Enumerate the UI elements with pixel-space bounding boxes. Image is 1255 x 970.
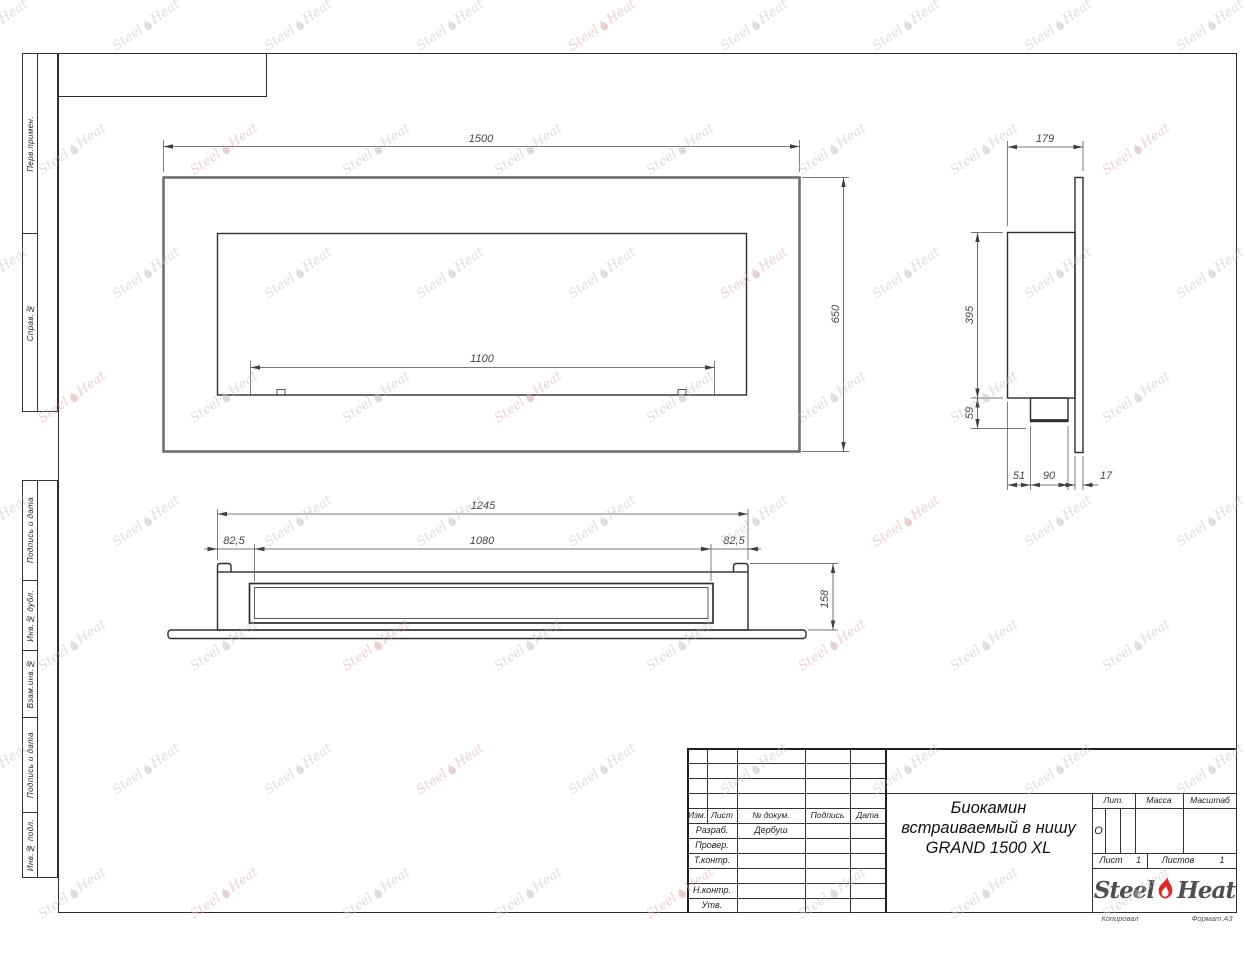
logo-text-right: Heat [1177, 877, 1235, 904]
front-panel-outline [164, 178, 800, 452]
title-line-1: Биокамин [951, 798, 1027, 818]
row-razrab: Разраб. [687, 823, 737, 838]
title-line-3: GRAND 1500 XL [926, 838, 1052, 858]
side-burner-tray [1031, 398, 1069, 422]
sheets-label: Листов [1147, 853, 1209, 868]
bottom-front-plate [168, 630, 806, 639]
dim-side-seg2: 90 [1043, 470, 1056, 482]
row-nkontr: Н.контр. [687, 883, 737, 898]
bottom-view: 1245 82,5 1080 82,5 158 [168, 500, 838, 639]
dim-front-width: 1500 [469, 133, 494, 145]
dim-bottom-left: 82,5 [223, 535, 245, 547]
copied-note: Копировал [1080, 914, 1160, 923]
lit-value: О [1092, 808, 1105, 853]
col-docnum: № докум. [737, 808, 805, 823]
dim-bottom-depth: 158 [819, 589, 831, 608]
dim-side-bottom: 59 [964, 407, 976, 419]
format-note: Формат А3 [1177, 914, 1247, 923]
sheet-label: Лист [1092, 853, 1130, 868]
mount-tab-right [734, 564, 749, 573]
dim-bottom-width: 1245 [471, 500, 496, 512]
opening-inner [255, 588, 709, 619]
title-line-2: встраиваемый в нишу [901, 818, 1076, 838]
row-utv: Утв. [687, 898, 737, 913]
side-front-plate [1075, 178, 1083, 453]
dim-front-height: 650 [830, 304, 842, 323]
mount-tab-left [218, 564, 232, 573]
burner-clip-right [678, 390, 686, 396]
opening-outer [250, 584, 714, 624]
lit-label: Лит. [1092, 793, 1135, 808]
mass-label: Масса [1135, 793, 1183, 808]
steelheat-logo: Steel Heat [1092, 868, 1237, 913]
sheets-value: 1 [1209, 853, 1235, 868]
col-data: Дата [850, 808, 885, 823]
razrab-name: Дербуш [737, 823, 805, 838]
row-tkontr: Т.контр. [687, 853, 737, 868]
niche-opening-outline [218, 234, 747, 396]
document-title: Биокамин встраиваемый в нишу GRAND 1500 … [885, 793, 1092, 913]
scale-label: Масштаб [1183, 793, 1237, 808]
dim-bottom-right: 82,5 [723, 535, 745, 547]
col-podpis: Подпись [805, 808, 850, 823]
bottom-dimensions: 1245 82,5 1080 82,5 158 [204, 500, 838, 630]
dim-front-opening: 1100 [470, 353, 495, 365]
front-view: 1500 650 1100 [164, 133, 850, 452]
side-body [1008, 233, 1076, 399]
dim-side-depth: 179 [1036, 133, 1054, 145]
side-view: 179 395 59 51 90 17 [964, 133, 1113, 490]
flame-icon [1155, 875, 1176, 906]
drawing-sheet: Перв.примен. Справ.№ Подпись и дата Инв.… [0, 0, 1255, 970]
sheet-value: 1 [1130, 853, 1147, 868]
col-list: Лист [707, 808, 737, 823]
dim-side-seg1: 51 [1013, 470, 1025, 482]
col-izm: Изм. [687, 808, 707, 823]
burner-clip-left [277, 390, 285, 396]
dim-side-seg3: 17 [1100, 470, 1113, 482]
dim-bottom-opening: 1080 [470, 535, 495, 547]
bottom-body [218, 572, 749, 630]
row-prover: Провер. [687, 838, 737, 853]
side-dimensions: 179 395 59 51 90 17 [964, 133, 1113, 490]
logo-text-left: Steel [1094, 877, 1154, 904]
dim-side-height: 395 [964, 305, 976, 324]
